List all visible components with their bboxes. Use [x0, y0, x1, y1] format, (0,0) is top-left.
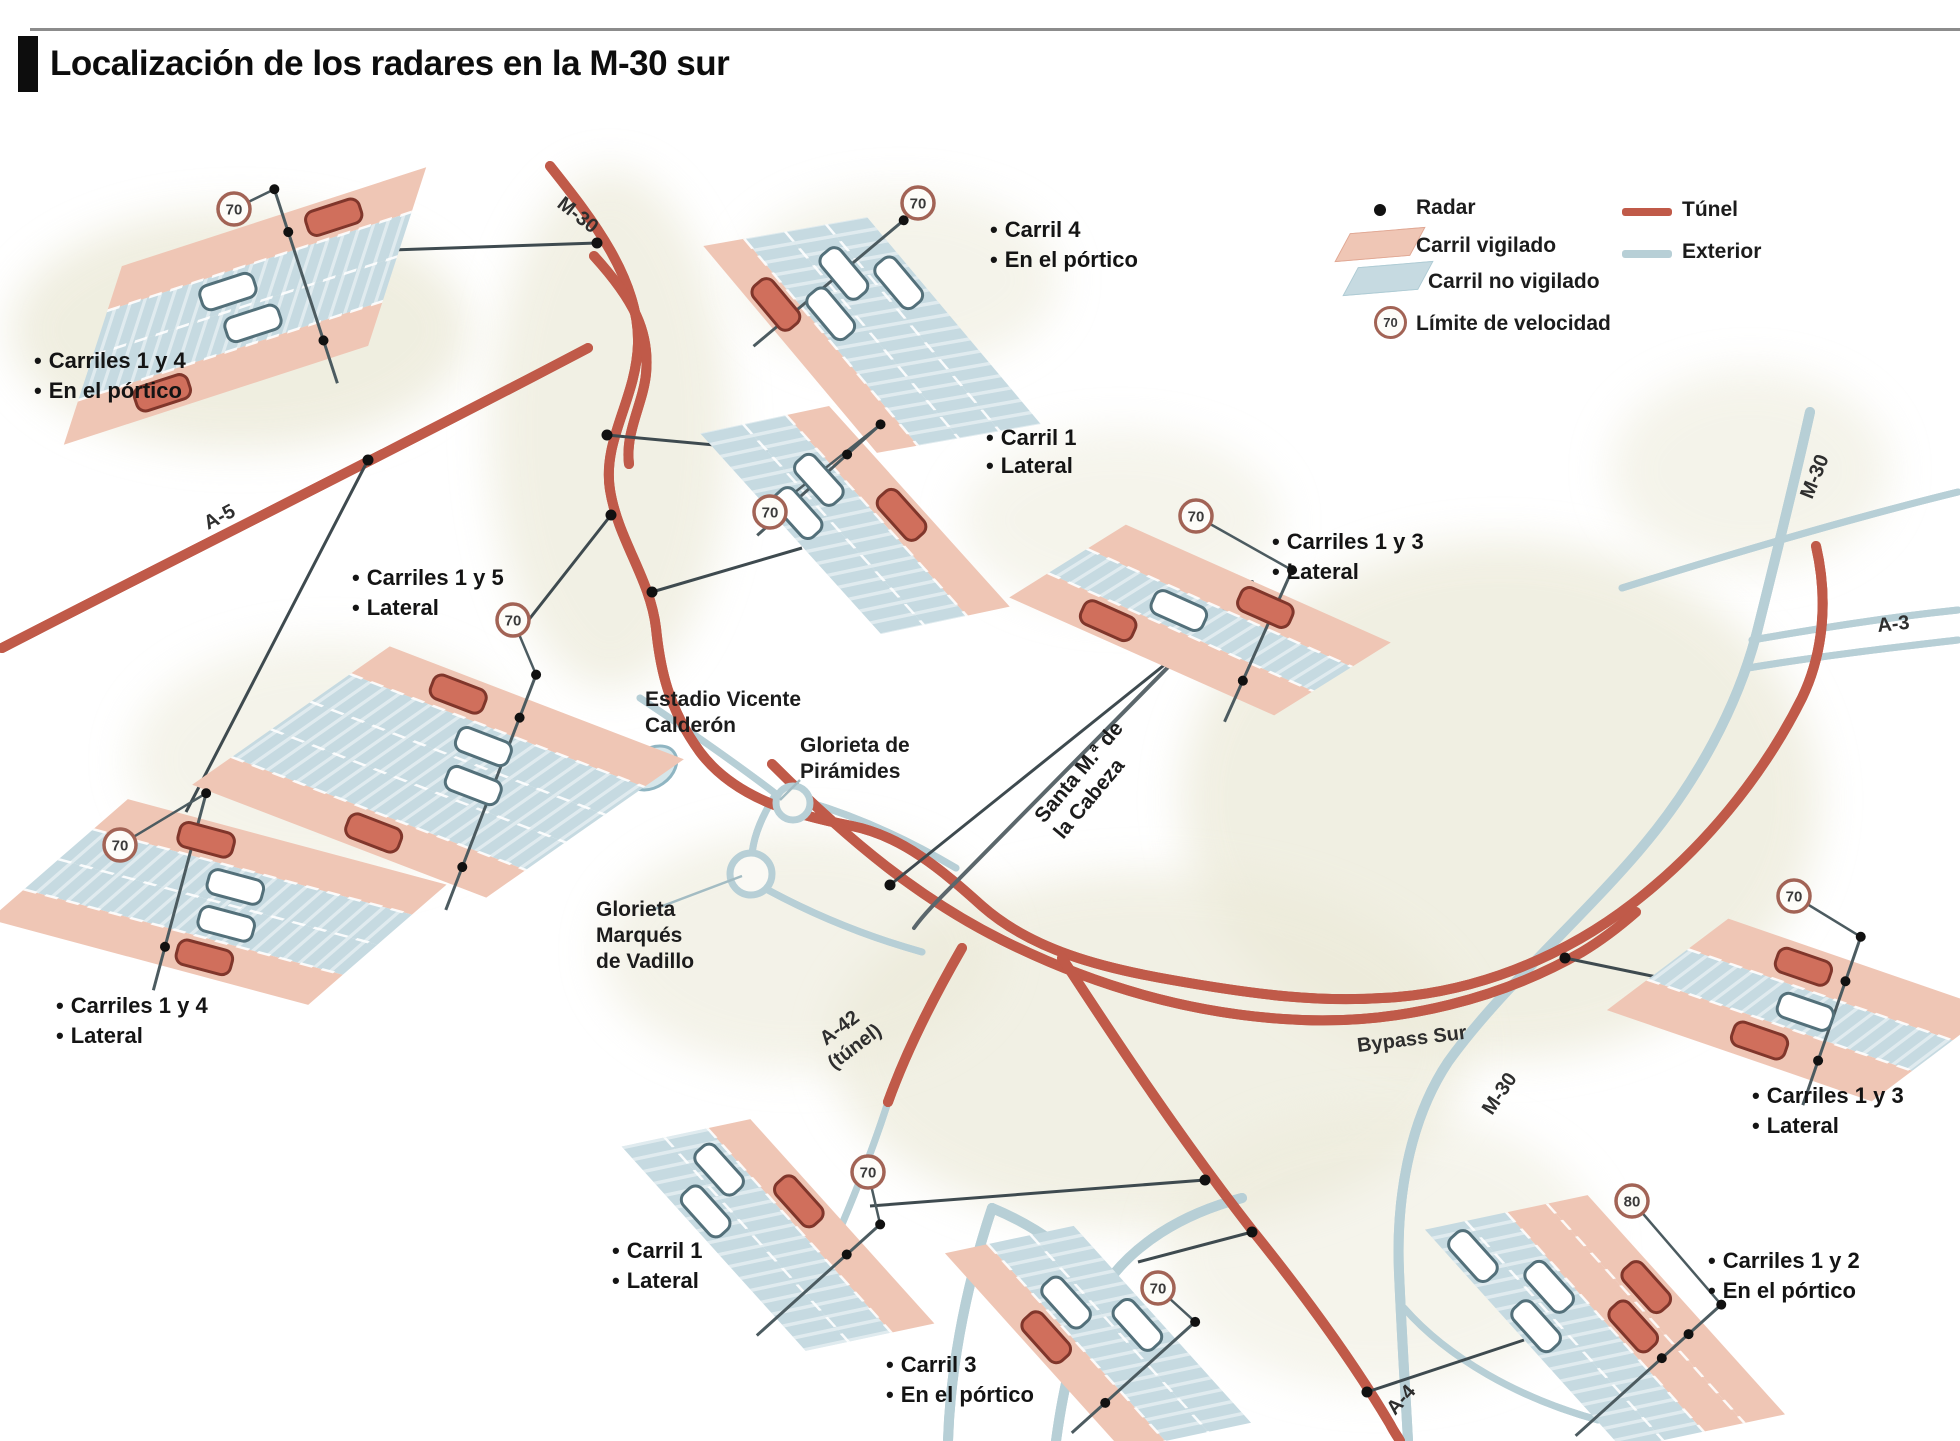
speed-limit-value: 80	[1624, 1194, 1641, 1211]
inset-label: •Lateral	[1272, 559, 1359, 584]
bullet-icon: •	[1272, 559, 1280, 584]
radar-dot	[606, 510, 617, 521]
radar-dot	[602, 430, 613, 441]
radar-dot	[363, 455, 374, 466]
inset-label-text: Carriles 1 y 3	[1287, 529, 1424, 554]
speed-limit-value: 70	[112, 838, 129, 855]
inset-label: •Lateral	[56, 1023, 143, 1048]
inset-label-text: En el pórtico	[1005, 247, 1138, 272]
radar-dot	[1560, 953, 1571, 964]
inset-label-text: Lateral	[71, 1023, 143, 1048]
bullet-icon: •	[1272, 529, 1280, 554]
bullet-icon: •	[886, 1352, 894, 1377]
speed-limit-sign: 70	[902, 187, 934, 219]
tunel-line-icon	[1622, 208, 1672, 216]
speed-limit-sign: 70	[1180, 500, 1212, 532]
inset-label-text: Carril 1	[1001, 425, 1077, 450]
inset-label-text: En el pórtico	[49, 378, 182, 403]
speed-limit-value: 70	[1786, 889, 1803, 906]
inset-label-text: Lateral	[367, 595, 439, 620]
bullet-icon: •	[1708, 1278, 1716, 1303]
radar-dot	[647, 587, 658, 598]
inset-label: •Carriles 1 y 3	[1272, 529, 1424, 554]
inset-label-text: Carril 1	[627, 1238, 703, 1263]
radar-dot	[592, 238, 603, 249]
speed-limit-sign: 70	[1142, 1272, 1174, 1304]
inset-label-text: Carriles 1 y 4	[71, 993, 209, 1018]
radar-dot	[268, 183, 281, 196]
inset-label: •En el pórtico	[886, 1382, 1034, 1407]
inset-label-text: Carriles 1 y 3	[1767, 1083, 1904, 1108]
roundabout-vadillo	[730, 853, 772, 895]
speed-limit-sign: 70	[754, 496, 786, 528]
radar-dot	[1200, 1175, 1211, 1186]
page-title: Localización de los radares en la M-30 s…	[50, 44, 729, 84]
speed-limit-sign: 70	[104, 829, 136, 861]
legend-exterior-label: Exterior	[1682, 240, 1761, 264]
speed-limit-sign: 80	[1616, 1185, 1648, 1217]
speed-limit-value: 70	[505, 613, 522, 630]
carril-vigilado-swatch	[1334, 227, 1425, 262]
bullet-icon: •	[986, 425, 994, 450]
roundabout-piramides	[776, 786, 810, 820]
inset-label: •Lateral	[1752, 1113, 1839, 1138]
inset-label-text: En el pórtico	[1723, 1278, 1856, 1303]
legend-limite-label: Límite de velocidad	[1416, 312, 1611, 336]
exterior-line-icon	[1622, 250, 1672, 258]
radar-dot	[530, 668, 543, 681]
inset-label-text: Carriles 1 y 4	[49, 348, 187, 373]
inset-label-text: Lateral	[1001, 453, 1073, 478]
speed-limit-value: 70	[226, 202, 243, 219]
inset-label: •En el pórtico	[34, 378, 182, 403]
inset-label: •Lateral	[612, 1268, 699, 1293]
bullet-icon: •	[990, 247, 998, 272]
bullet-icon: •	[990, 217, 998, 242]
speed-limit-icon: 70	[1374, 306, 1407, 339]
speed-limit-value: 70	[762, 505, 779, 522]
inset-label: •Carriles 1 y 5	[352, 565, 504, 590]
header-tab	[18, 36, 38, 92]
bullet-icon: •	[612, 1238, 620, 1263]
inset-label: •Carriles 1 y 4	[56, 993, 208, 1018]
bullet-icon: •	[352, 565, 360, 590]
speed-limit-value: 70	[910, 196, 927, 213]
bullet-icon: •	[34, 378, 42, 403]
inset-label: •Carril 3	[886, 1352, 977, 1377]
bullet-icon: •	[56, 993, 64, 1018]
bullet-icon: •	[1752, 1113, 1760, 1138]
speed-limit-value: 70	[1188, 509, 1205, 526]
label-santa-maria: Santa M.ª de la Cabeza	[1030, 713, 1151, 844]
bullet-icon: •	[986, 453, 994, 478]
inset-label: •Carriles 1 y 4	[34, 348, 186, 373]
radar-dot	[885, 880, 896, 891]
label-vadillo: Glorieta Marqués de Vadillo	[596, 898, 694, 973]
header-rule	[30, 28, 1960, 31]
inset-label-text: Carriles 1 y 5	[367, 565, 504, 590]
legend-no-vigilado-label: Carril no vigilado	[1428, 270, 1600, 294]
speed-limit-sign: 70	[1778, 880, 1810, 912]
inset-label-text: Lateral	[627, 1268, 699, 1293]
road-label-m30-se: M-30	[1478, 1069, 1522, 1119]
carril-no-vigilado-swatch	[1342, 261, 1433, 296]
bullet-icon: •	[1708, 1248, 1716, 1273]
bullet-icon: •	[1752, 1083, 1760, 1108]
legend: Radar Carril vigilado Carril no vigilado…	[1330, 190, 1950, 360]
inset-label-text: En el pórtico	[901, 1382, 1034, 1407]
inset-label-text: Carril 4	[1005, 217, 1082, 242]
radar-dot	[1854, 930, 1867, 943]
inset-label-text: Lateral	[1287, 559, 1359, 584]
inset-label: •En el pórtico	[990, 247, 1138, 272]
bullet-icon: •	[56, 1023, 64, 1048]
speed-limit-value: 70	[860, 1165, 877, 1182]
bullet-icon: •	[886, 1382, 894, 1407]
bullet-icon: •	[34, 348, 42, 373]
inset-label: •Lateral	[352, 595, 439, 620]
legend-vigilado-label: Carril vigilado	[1416, 234, 1556, 258]
road-label-a3: A-3	[1876, 612, 1910, 637]
infographic-stage: 70•Carriles 1 y 4•En el pórtico70•Carril…	[0, 0, 1960, 1441]
radar-dot-icon	[1374, 204, 1386, 216]
radar-dot	[1362, 1387, 1373, 1398]
speed-limit-sign: 70	[218, 193, 250, 225]
legend-radar-label: Radar	[1416, 196, 1476, 220]
bullet-icon: •	[612, 1268, 620, 1293]
inset-label: •Carriles 1 y 2	[1708, 1248, 1860, 1273]
speed-limit-value: 70	[1150, 1281, 1167, 1298]
label-piramides: Glorieta de Pirámides	[800, 734, 916, 783]
inset-label: •Carril 1	[612, 1238, 703, 1263]
bullet-icon: •	[352, 595, 360, 620]
radar-dot	[1247, 1227, 1258, 1238]
label-estadio: Estadio Vicente Calderón	[645, 688, 807, 737]
speed-limit-sign: 70	[852, 1156, 884, 1188]
inset-label: •En el pórtico	[1708, 1278, 1856, 1303]
legend-tunel-label: Túnel	[1682, 198, 1738, 222]
inset-label-text: Lateral	[1767, 1113, 1839, 1138]
inset-label-text: Carriles 1 y 2	[1723, 1248, 1860, 1273]
inset-label: •Carriles 1 y 3	[1752, 1083, 1904, 1108]
speed-limit-sign: 70	[497, 604, 529, 636]
inset-label-text: Carril 3	[901, 1352, 977, 1377]
